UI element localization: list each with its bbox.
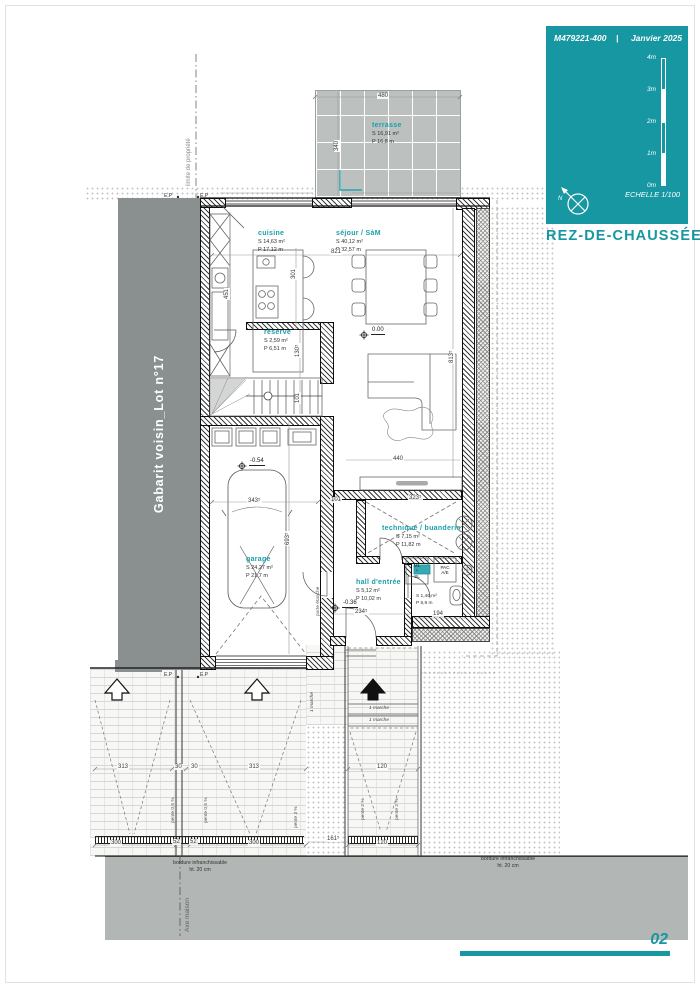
dim-curb-a: 52 <box>172 839 181 845</box>
reserve-area: S 2,59 m² <box>264 338 288 344</box>
slope-arrows <box>105 679 385 700</box>
reserve-label: réserve S 2,59 m² P 6,51 m <box>264 328 291 354</box>
garage-perimeter: P 21,7 m <box>246 573 268 579</box>
dim-apron-right: 300 <box>248 840 260 846</box>
furniture <box>210 214 472 654</box>
floor-title: REZ-DE-CHAUSSÉE <box>546 228 700 244</box>
dim-cuisine-depth: 451 <box>224 288 230 300</box>
garage-storage <box>212 428 316 446</box>
terrasse-perimeter: P 16,8 m <box>372 139 394 145</box>
sejour-area: S 40,12 m² <box>336 239 363 245</box>
hall-area: S 5,12 m² <box>356 588 380 594</box>
dim-strip-a: 30 <box>174 764 183 770</box>
cuisine-perimeter: P 17,12 m <box>258 247 283 253</box>
north-compass-icon: N <box>556 182 596 218</box>
terrasse-label: terrasse S 16,91 m² P 16,8 m <box>372 121 402 147</box>
cuisine-area: S 14,63 m² <box>258 239 285 245</box>
step-note-v: 1 marche <box>310 692 315 712</box>
technique-name: technique / buanderie <box>382 524 461 534</box>
hall-name: hall d'entrée <box>356 578 401 588</box>
curb-note-right: bordure infranchissable ht. 20 cm <box>466 856 550 869</box>
dimension-lines <box>93 92 466 847</box>
dim-terrace-width: 480 <box>377 93 389 99</box>
dim-curb-b: 52 <box>189 839 198 845</box>
heat-pump-label: PAC A/E <box>435 560 455 580</box>
dim-strip-b: 30 <box>190 764 199 770</box>
slope-label-4: pente 2 % <box>361 798 366 820</box>
scale-mark-2m: 2m <box>634 118 656 125</box>
scale-seg-3 <box>661 122 666 154</box>
wc-perimeter: P 5,9 m <box>416 601 432 606</box>
dim-garage-length: 693⁵ <box>285 532 291 547</box>
dim-reserve: 130⁵ <box>295 344 301 359</box>
technique-area: S 7,15 m² <box>382 534 420 540</box>
ep-dots <box>177 196 199 678</box>
cuisine-label: cuisine S 14,63 m² P 17,12 m <box>258 229 285 255</box>
dim-stair: 101 <box>295 392 301 404</box>
drawing-ref: M479221-400 <box>554 33 606 43</box>
curb-note-left: bordure infranchissable ht. 20 cm <box>158 860 242 873</box>
scale-seg-1 <box>661 58 666 90</box>
plan-sheet: Gabarit voisin_Lot n°17 <box>0 0 700 988</box>
terrasse-area: S 16,91 m² <box>372 131 399 137</box>
dim-sejour-length: 440 <box>392 456 404 462</box>
reserve-perimeter: P 6,51 m <box>264 346 286 352</box>
technique-label: technique / buanderie S 7,15 m² P 11,82 … <box>382 524 461 550</box>
scale-caption: ECHELLE 1/100 <box>592 190 680 199</box>
step-note-2: 1 marche <box>369 718 389 723</box>
hall-label: hall d'entrée S 5,12 m² P 10,02 m <box>356 578 401 604</box>
dim-island: 301 <box>291 268 297 280</box>
dim-sejour-width: 821 <box>330 249 342 255</box>
garage-name: garage <box>246 555 273 565</box>
scale-mark-3m: 3m <box>634 86 656 93</box>
dim-terrace-height: 340 <box>334 140 340 152</box>
dim-technique-gap: 101 <box>330 497 342 503</box>
dim-hall-width: 234⁵ <box>354 609 369 615</box>
dim-drive-left: 313 <box>117 764 129 770</box>
watertight-door-note: porte étanche <box>316 587 321 616</box>
scale-mark-1m: 1m <box>634 150 656 157</box>
level-hall: -0.36 <box>342 600 358 608</box>
dim-path-bottom: 120 <box>376 840 388 846</box>
step-note-1: 1 marche <box>369 706 389 711</box>
level-sejour: 0.00 <box>371 327 385 335</box>
dim-wc-width: 194 <box>432 611 444 617</box>
scale-seg-4 <box>661 154 666 186</box>
scale-seg-2 <box>661 90 666 122</box>
footer-accent-line <box>460 951 670 956</box>
ep-label-3: E.P <box>164 672 172 678</box>
wall-lines <box>200 193 490 668</box>
slope-label-1: pente 0,5 % <box>171 797 176 823</box>
washer-dryer-label: ML + SL <box>407 559 427 583</box>
page-number: 02 <box>600 931 668 949</box>
ep-label-4: E.P <box>200 672 208 678</box>
sejour-name: séjour / SàM <box>336 229 381 239</box>
scale-mark-4m: 4m <box>634 54 656 61</box>
scale-mark-0m: 0m <box>634 182 656 189</box>
garage-label: garage S 24,27 m² P 21,7 m <box>246 555 273 581</box>
dim-technique-width: 323⁵ <box>408 495 423 501</box>
terrasse-name: terrasse <box>372 121 402 131</box>
slope-label-5: pente 2 % <box>395 798 400 820</box>
house-axis-label: Axe maison <box>184 898 191 932</box>
wc-area: S 1,46 m² <box>416 594 437 599</box>
technique-perimeter: P 11,82 m <box>382 542 421 548</box>
stairs <box>210 378 322 416</box>
slope-label-3: pente 3 % <box>294 806 299 828</box>
dim-sejour-height: 813⁵ <box>449 350 455 365</box>
ep-label-1: E.P <box>164 193 172 199</box>
level-garage: -0.54 <box>249 458 265 466</box>
property-line-label: limite de propriété <box>186 138 192 186</box>
ref-separator: | <box>616 33 618 43</box>
sejour-label: séjour / SàM S 40,12 m² P 32,57 m <box>336 229 381 255</box>
drawing-date: Janvier 2025 <box>628 33 682 43</box>
dim-apron-left: 300 <box>110 840 122 846</box>
teal-marks <box>340 170 362 190</box>
cuisine-name: cuisine <box>258 229 285 239</box>
reserve-name: réserve <box>264 328 291 338</box>
ep-label-2: E.P <box>200 193 208 199</box>
wc-label: S 1,46 m² P 5,9 m <box>416 594 437 608</box>
garage-area: S 24,27 m² <box>246 565 273 571</box>
slope-label-2: pente 0,5 % <box>204 797 209 823</box>
hall-perimeter: P 10,02 m <box>356 596 381 602</box>
north-letter: N <box>558 196 563 202</box>
car <box>222 470 292 608</box>
title-block: M479221-400 | Janvier 2025 4m 3m 2m 1m 0… <box>546 26 688 224</box>
dim-drive-right: 313 <box>248 764 260 770</box>
dim-path-length: 161⁵ <box>326 836 341 842</box>
dim-garage-width: 343⁵ <box>247 498 262 504</box>
dim-path-width: 120 <box>376 764 388 770</box>
